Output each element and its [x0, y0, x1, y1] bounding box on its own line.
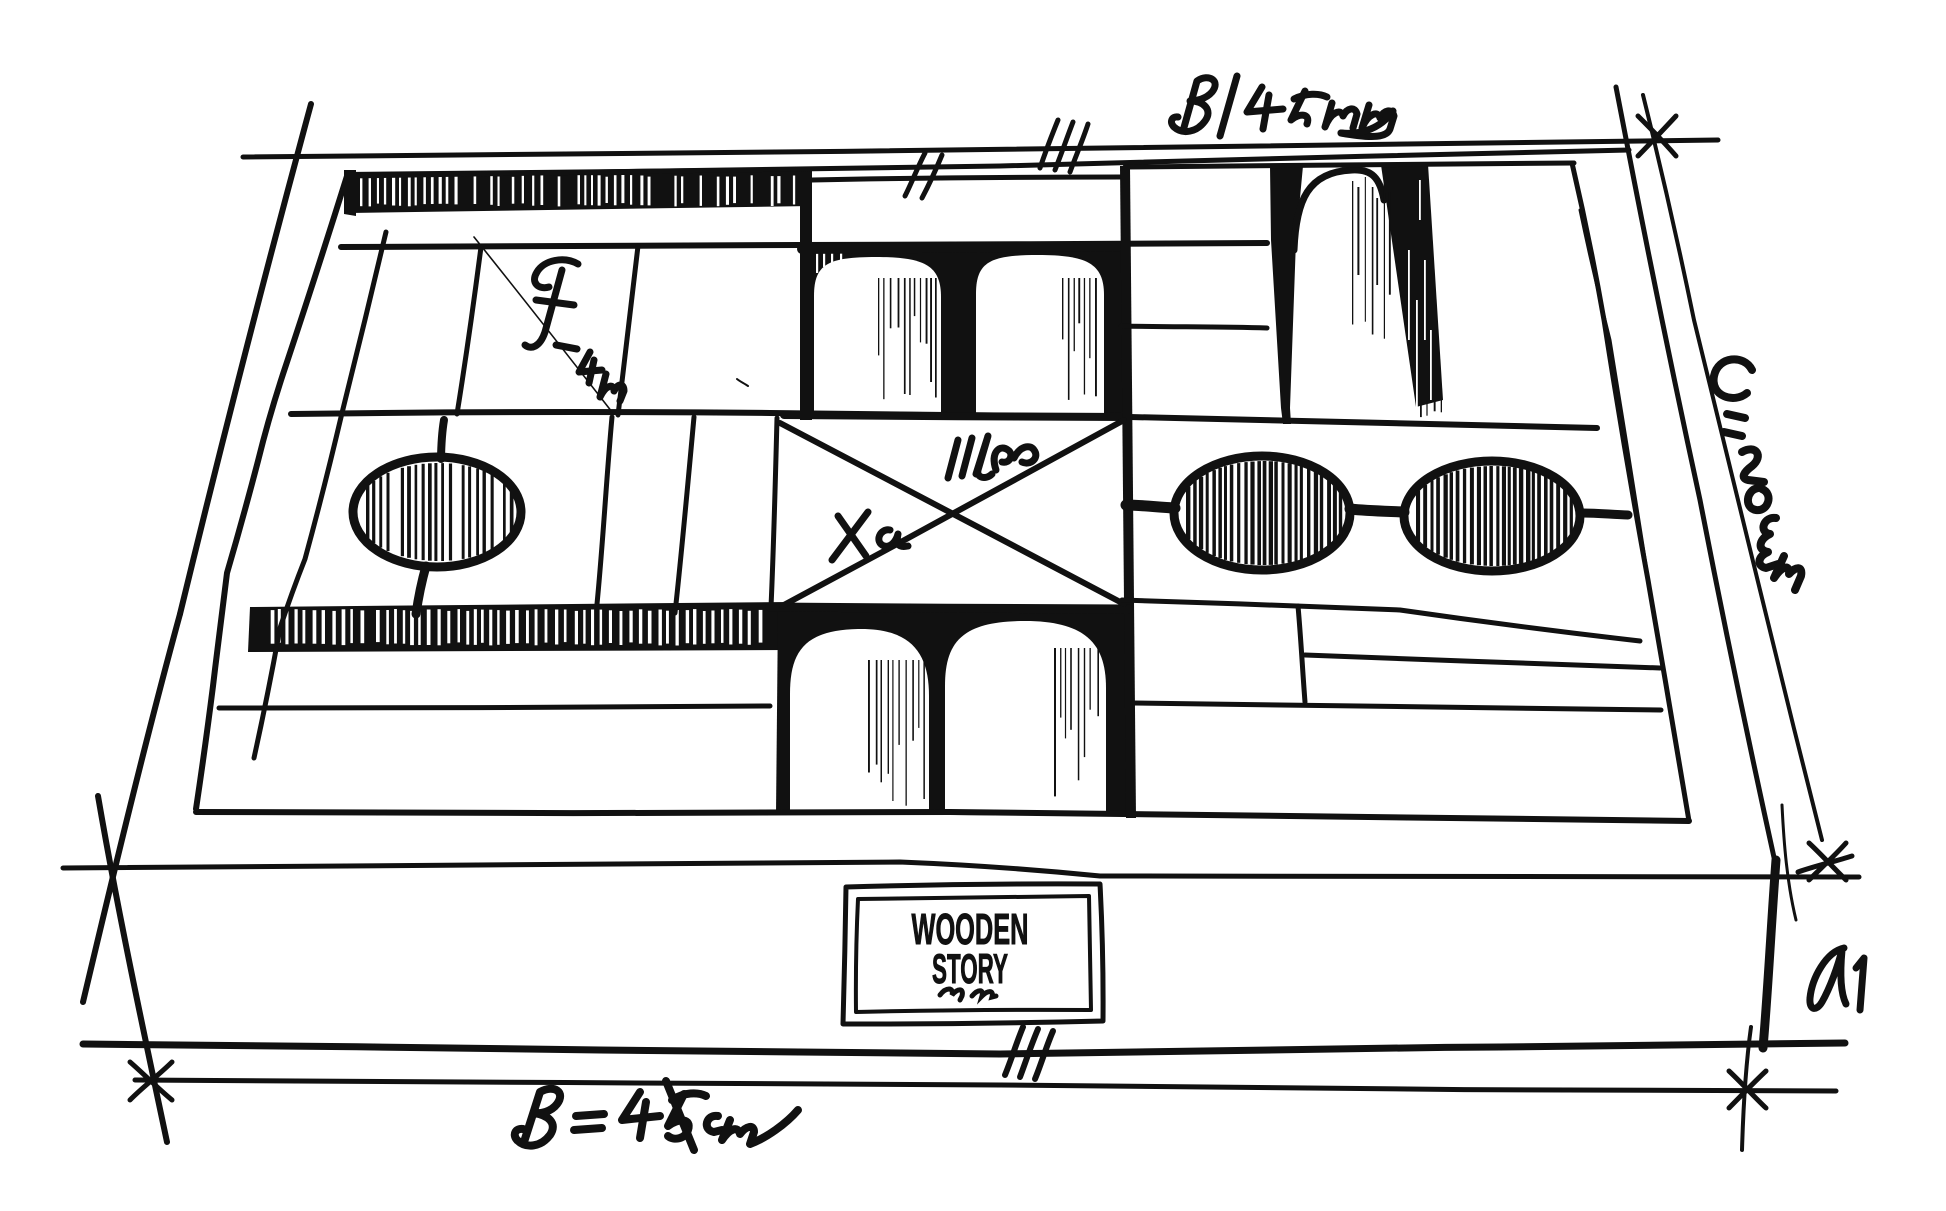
- svg-text:STORY: STORY: [932, 945, 1008, 992]
